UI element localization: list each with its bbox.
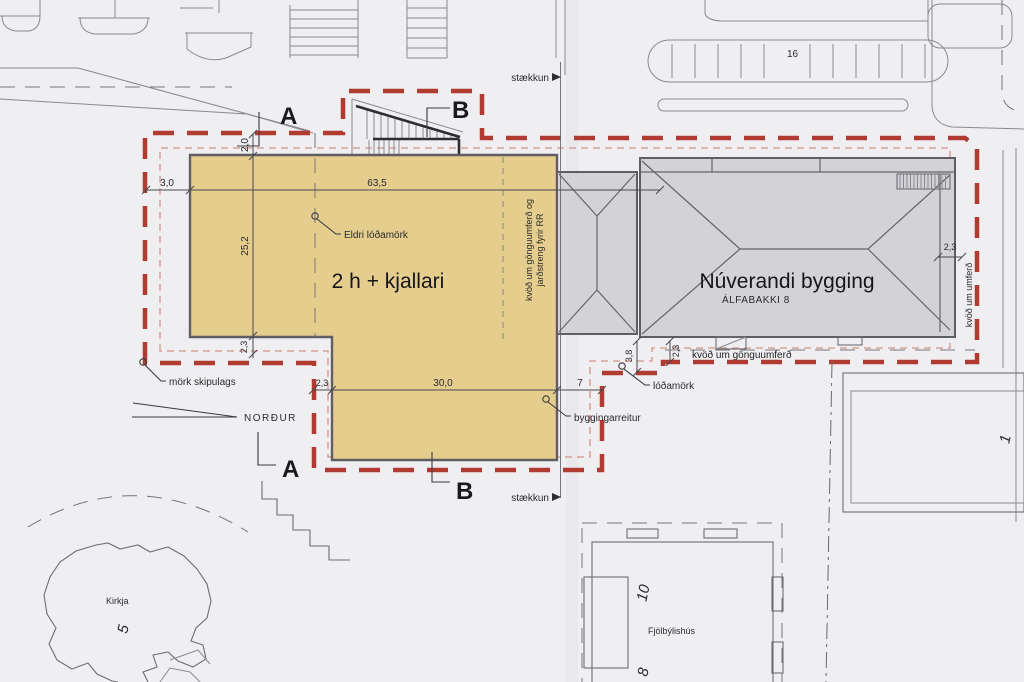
easement-strip-label-1: kvöð um gönguumferð og: [524, 199, 534, 301]
new-building-label: 2 h + kjallari: [332, 270, 445, 293]
staekkun-label-top: stækkun: [511, 73, 549, 84]
section-b-top: B: [452, 97, 469, 124]
section-b-bottom: B: [456, 478, 473, 505]
dim-wing-offset: 2,3: [316, 378, 329, 388]
parking-count-label: 16: [787, 49, 799, 60]
dim-south-strip: 2,3: [671, 345, 681, 358]
site-plan-drawing: 16 stækkun s: [0, 0, 1024, 682]
eldri-lodamork-label: Eldri lóðamörk: [344, 229, 409, 241]
dim-south-gap: 3,8: [624, 350, 634, 363]
staekkun-label-bottom: stækkun: [511, 493, 549, 504]
existing-building-label: Núverandi bygging: [699, 270, 874, 293]
dim-wing-width: 30,0: [433, 378, 453, 389]
section-a-bottom: A: [282, 456, 299, 483]
dim-left-step: 2,3: [239, 341, 249, 354]
dim-left-height: 25,2: [240, 236, 251, 256]
kvod-gonguumferd-label: kvöð um gönguumferð: [692, 349, 792, 361]
dim-wing-gap: 7: [577, 378, 583, 389]
site-plan-page: 16 stækkun s: [0, 0, 1024, 682]
dim-top-gap: 2,0: [240, 138, 251, 152]
dim-left-offset: 3,0: [160, 178, 174, 189]
fjolbylishus-label: Fjölbýlishús: [648, 626, 696, 636]
dim-east-gap: 2,3: [944, 242, 957, 252]
east-easement-label: kvöð um umferð: [964, 263, 974, 328]
existing-building-address: ÁLFABAKKI 8: [722, 293, 790, 306]
dim-top-width: 63,5: [367, 178, 387, 189]
byggingarreitur-label: byggingarreitur: [574, 413, 641, 424]
section-a-top: A: [280, 103, 297, 130]
lodamork-label: lóðamörk: [653, 380, 695, 392]
easement-strip-label-2: jarðstreng fyrir RR: [535, 213, 545, 288]
mork-skipulags-label: mörk skipulags: [169, 377, 236, 388]
kirkja-label: Kirkja: [106, 596, 129, 606]
nordur-label: NORÐUR: [244, 413, 297, 424]
existing-building: [557, 158, 955, 349]
paper-fold: [566, 0, 578, 682]
